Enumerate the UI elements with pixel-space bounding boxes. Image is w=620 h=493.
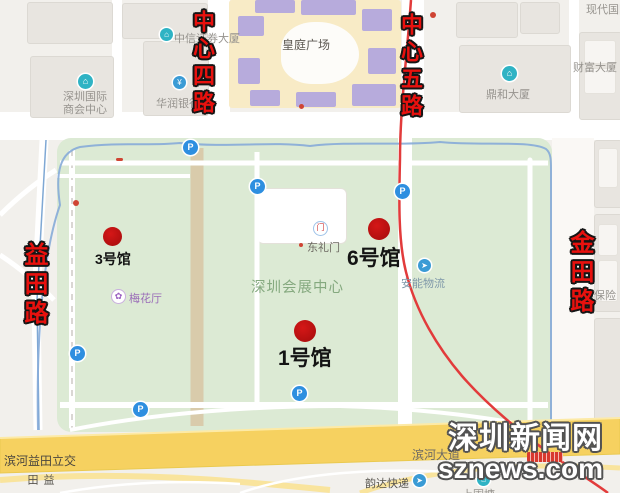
city-block-dinghe	[459, 45, 571, 113]
hall-6-marker[interactable]	[368, 218, 390, 240]
poi-label-mall: 皇庭广场	[282, 36, 330, 53]
east-gate-building	[257, 188, 347, 244]
building-icon[interactable]: ⌂	[160, 28, 173, 41]
poi-label-shangweitang: 上围塘	[462, 486, 495, 493]
poi-label-donglimen: 东礼门	[307, 239, 340, 255]
mall-building	[301, 0, 356, 15]
building-icon[interactable]: ⌂	[502, 66, 517, 81]
city-block	[456, 2, 518, 38]
road-label-center4: 中心四路	[186, 10, 218, 118]
map-dot	[299, 104, 304, 109]
parking-icon[interactable]: P	[70, 346, 85, 361]
watermark-line1: 深圳新闻网	[415, 424, 603, 455]
hall-3-label: 3号馆	[95, 249, 131, 269]
road-label-jintian: 金田路	[562, 230, 597, 317]
poi-label-commerce-line2: 商会中心	[63, 101, 107, 117]
mall-building	[368, 48, 396, 74]
hall-1-label: 1号馆	[278, 342, 332, 372]
mall-building	[250, 90, 280, 106]
hall-6-label: 6号馆	[347, 242, 401, 272]
road-label-center5: 中心五路	[394, 13, 426, 121]
parking-icon[interactable]: P	[183, 140, 198, 155]
flower-icon[interactable]: ✿	[111, 289, 126, 304]
parking-icon[interactable]: P	[292, 386, 307, 401]
building	[598, 148, 618, 188]
bank-icon[interactable]: ¥	[173, 76, 186, 89]
city-block	[594, 318, 620, 424]
mall-building	[255, 0, 295, 13]
mall-building	[362, 9, 392, 31]
building	[598, 224, 618, 256]
building-icon[interactable]: ⌂	[78, 74, 93, 89]
hall-1-marker[interactable]	[294, 320, 316, 342]
mall-building	[238, 58, 260, 84]
parking-icon[interactable]: P	[250, 179, 265, 194]
poi-label-caifu: 财富大厦	[573, 59, 617, 75]
poi-label-xiandai: 现代国际	[586, 1, 620, 17]
city-block	[27, 2, 113, 44]
map-canvas[interactable]: ⌂ ⌂ ¥ ⌂ 门 ✿ ➤ ➤ ⌂ P P P P P P 深圳国际 商会中心 …	[0, 0, 620, 493]
city-block	[520, 2, 560, 34]
truck-icon[interactable]: ➤	[418, 259, 431, 272]
poi-label-anneng: 安能物流	[401, 275, 445, 291]
poi-label-yunda: 韵达快递	[365, 475, 409, 491]
gate-icon[interactable]: 门	[313, 221, 328, 236]
mall-building	[352, 84, 396, 106]
road-label-yitian: 益田路	[16, 242, 51, 329]
hall-3-marker[interactable]	[103, 227, 122, 246]
watermark-line2: sznews.com	[415, 455, 603, 484]
venue-name-label: 深圳会展中心	[251, 276, 344, 297]
poi-label-meihua: 梅花厅	[129, 290, 162, 306]
mall-huangting-plaza	[229, 0, 401, 108]
poi-label-dinghe: 鼎和大厦	[486, 86, 530, 102]
mall-building	[238, 16, 264, 36]
watermark: 深圳新闻网 sznews.com	[415, 424, 603, 483]
map-dot	[430, 12, 436, 18]
map-dot	[299, 243, 303, 247]
poi-label-interchange: 滨河益田立交	[4, 452, 76, 469]
road-label-yitian-south: 益田	[24, 474, 56, 493]
map-dash	[116, 158, 123, 161]
map-dot	[73, 200, 79, 206]
parking-icon[interactable]: P	[133, 402, 148, 417]
parking-icon[interactable]: P	[395, 184, 410, 199]
mall-courtyard	[281, 22, 359, 84]
